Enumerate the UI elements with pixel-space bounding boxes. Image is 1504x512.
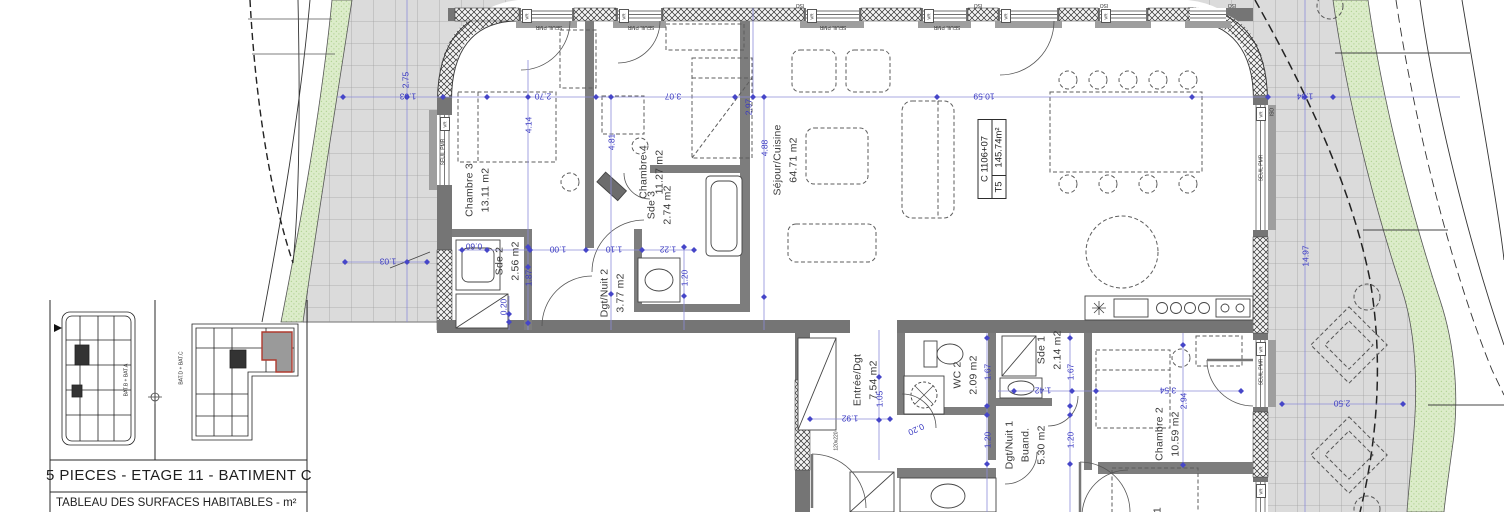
dim-label: 1.03 xyxy=(380,256,397,265)
dim-label: 1.92 xyxy=(842,413,859,422)
unit-code: C 1106+07 xyxy=(979,120,993,198)
dim-label: 4.81 xyxy=(607,134,616,151)
dim-label: 10.59 xyxy=(973,91,994,100)
sheet-title: 5 PIECES - ETAGE 11 - BATIMENT C xyxy=(46,468,312,485)
vr-shutter-tag: VR xyxy=(1101,9,1111,23)
vr-shutter-tag: VR xyxy=(440,117,450,131)
vr-shutter-tag: VR xyxy=(1256,342,1266,356)
seuil-pmr-label: SEUIL PMR xyxy=(820,23,847,29)
dim-label: 1.04 xyxy=(1297,91,1314,100)
room-label-chambre-2: Chambre 210.59 m2 xyxy=(1152,407,1184,461)
floor-plan-drawing xyxy=(0,0,1504,512)
dim-label: 1.20 xyxy=(1066,432,1075,449)
iso-label: ISO xyxy=(796,1,805,7)
room-label-dgt-nuit-2: Dgt/Nuit 23.77 m2 xyxy=(597,269,629,318)
key-plan-axis-right: BAT.D + BAT.C xyxy=(179,351,185,384)
door-swings xyxy=(521,21,1253,512)
room-label-sde-2: Sde 22.56 m2 xyxy=(492,241,524,280)
seuil-pmr-label: SEUIL PMR xyxy=(536,23,563,29)
iso-label: ISO xyxy=(974,1,983,7)
dim-label: 1.03 xyxy=(400,91,417,100)
seuil-pmr-label: SEUIL PMR xyxy=(934,23,961,29)
vr-shutter-tag: VR xyxy=(807,9,817,23)
seuil-pmr-label: SEUIL PMR xyxy=(628,23,655,29)
unit-area: 145.74m² xyxy=(993,120,1006,175)
dim-label: 1.10 xyxy=(606,244,623,253)
room-label-sejour-cuisine: Séjour/Cuisine64.71 m2 xyxy=(770,124,802,195)
vr-shutter-tag: VR xyxy=(1256,484,1266,498)
dim-label: 1.42 xyxy=(1035,385,1052,394)
dim-label: 3.54 xyxy=(1160,385,1177,394)
dim-label: 1.20 xyxy=(983,432,992,449)
seuil-pmr-label: SEUIL PMR xyxy=(1259,155,1265,182)
unit-tag: C 1106+07 T5 145.74m² xyxy=(978,119,1007,199)
room-label-wc-2: WC 22.09 m2 xyxy=(950,355,982,394)
dim-label: 1.00 xyxy=(550,244,567,253)
dim-label: 1.20 xyxy=(680,270,689,287)
dim-label: 4.88 xyxy=(760,140,769,157)
dim-label: 1.87 xyxy=(524,270,533,287)
surface-table-header: TABLEAU DES SURFACES HABITABLES - m² xyxy=(56,497,297,510)
dim-label: 4.14 xyxy=(524,117,533,134)
room-label-dgt-nuit-1: Dgt/Nuit 1Buand.5.30 m2 xyxy=(1002,421,1049,470)
dim-label: 2.94 xyxy=(1179,393,1188,410)
room-label-chambre-1: Chambre 1m2 xyxy=(1150,507,1182,512)
vr-shutter-tag: VR xyxy=(1001,9,1011,23)
key-plan-axis-left: BAT.B + BAT.A xyxy=(124,364,130,397)
dim-label: 2.70 xyxy=(535,91,552,100)
floor-plan-sheet: Chambre 313.11 m2 Chambre 411.27 m2 Séjo… xyxy=(0,0,1504,512)
iso-label: ISO xyxy=(1100,1,1109,7)
dim-label: 0.60 xyxy=(466,241,483,250)
right-terrace xyxy=(1188,0,1504,512)
exterior-walls xyxy=(429,8,1276,512)
vr-shutter-tag: VR xyxy=(619,9,629,23)
iso-label: ISO xyxy=(1270,108,1276,117)
dim-label: 0.20 xyxy=(499,299,508,316)
vr-shutter-tag: VR xyxy=(1256,107,1266,121)
vr-shutter-tag: VR xyxy=(522,9,532,23)
key-plan-right-building xyxy=(192,324,298,440)
seuil-pmr-label: SEUIL PMR xyxy=(1259,359,1265,386)
dim-label: 1.22 xyxy=(660,244,677,253)
door-size-label: 120x220 xyxy=(834,431,840,450)
room-label-sde-3: Sde 32.74 m2 xyxy=(644,185,676,224)
seuil-pmr-label: SEUIL PMR xyxy=(441,139,447,166)
fixtures xyxy=(456,172,1253,512)
iso-label: ISO xyxy=(1228,1,1237,7)
dim-label: 2.97 xyxy=(744,99,753,116)
room-label-sde-1: Sde 12.14 m2 xyxy=(1034,330,1066,369)
unit-type: T5 xyxy=(993,175,1006,198)
dim-label: 2.50 xyxy=(1334,398,1351,407)
dim-label: 2.75 xyxy=(401,72,410,89)
room-label-chambre-3: Chambre 313.11 m2 xyxy=(462,163,494,217)
dim-label: 14.97 xyxy=(1301,245,1310,266)
vr-shutter-tag: VR xyxy=(924,9,934,23)
highlighted-unit xyxy=(262,332,292,372)
dim-label: 1.67 xyxy=(983,364,992,381)
dim-label: 1.05 xyxy=(875,391,884,408)
dim-label: 3.07 xyxy=(665,91,682,100)
dim-label: 1.67 xyxy=(1066,364,1075,381)
interior-walls xyxy=(452,21,1253,478)
